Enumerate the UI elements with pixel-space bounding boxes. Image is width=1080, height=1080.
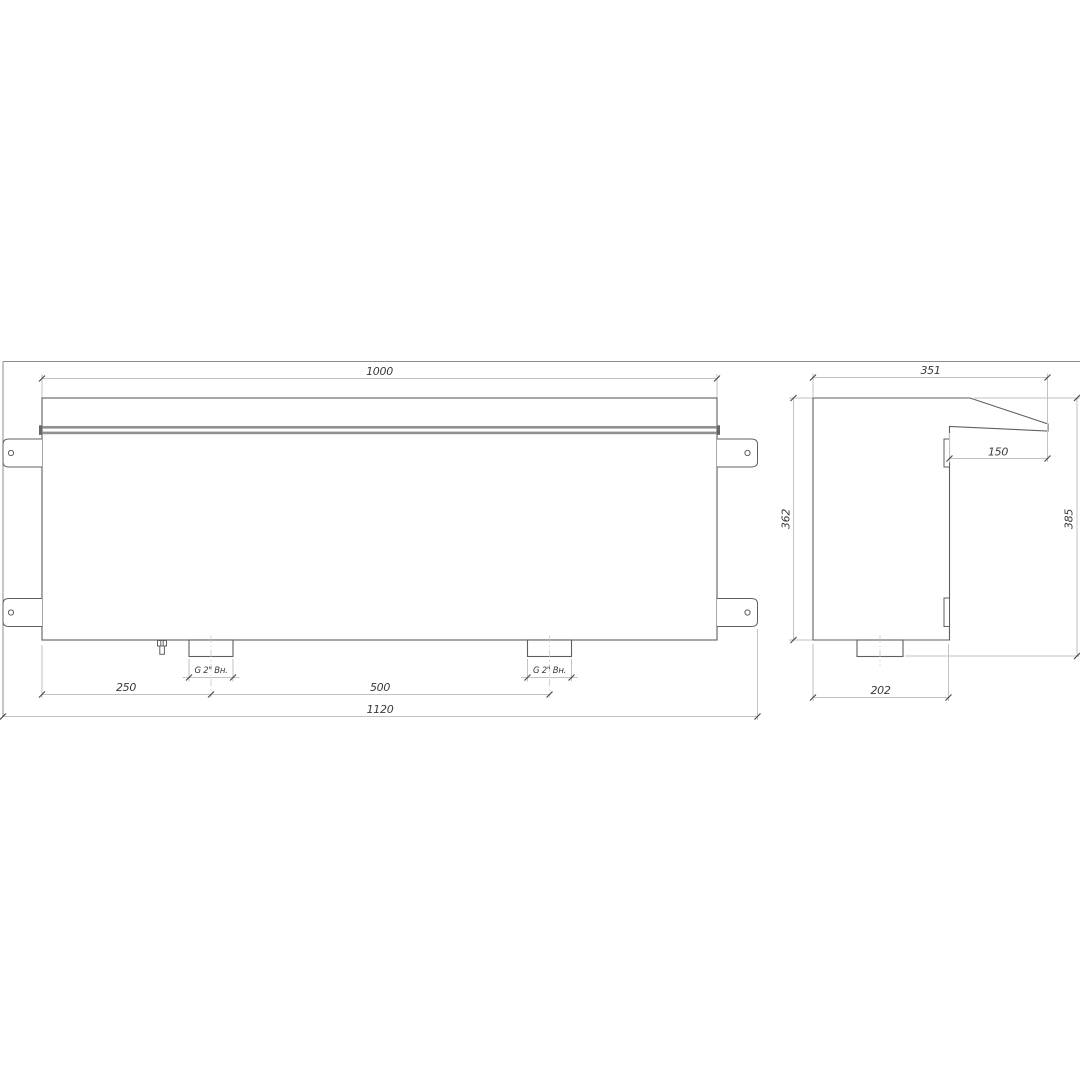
dim-250-label: 250 <box>116 681 136 694</box>
dim-500-label: 500 <box>370 681 390 694</box>
fitting-right-label: G 2" Вн. <box>533 666 566 676</box>
side-view <box>813 398 1048 666</box>
tank-drawing-svg: 1000 250 500 1120 G 2" Вн. G 2" Вн. 351 … <box>0 0 1080 1080</box>
drain-plug <box>158 641 167 655</box>
tank-body-side-profile <box>813 398 1048 640</box>
drain-plug-stem <box>160 646 165 654</box>
rail-bar-upper <box>40 426 720 429</box>
bolt-hole-top-right <box>745 450 750 455</box>
front-view <box>3 398 758 698</box>
technical-drawing-canvas: 1000 250 500 1120 G 2" Вн. G 2" Вн. 351 … <box>0 0 1080 1080</box>
bolt-hole-top-left <box>8 450 13 455</box>
rail-bar-lower <box>40 432 720 435</box>
mounting-bracket-top-right <box>717 439 758 467</box>
dim-385-label: 385 <box>1063 509 1076 529</box>
side-bracket-tab-lower <box>944 598 950 627</box>
bolt-hole-bottom-right <box>745 610 750 615</box>
dim-1000-label: 1000 <box>366 365 393 378</box>
dim-150-label: 150 <box>988 446 1008 459</box>
rail-endcap-left <box>39 425 42 435</box>
dim-362-lines <box>789 398 813 640</box>
drain-plug-flange <box>158 641 167 647</box>
rail-endcap-right <box>717 425 720 435</box>
dim-1120-label: 1120 <box>367 703 394 716</box>
dim-202-label: 202 <box>870 684 890 697</box>
mounting-bracket-bottom-right <box>717 599 758 627</box>
dim-351-label: 351 <box>920 364 940 377</box>
side-bracket-tab-upper <box>944 439 950 467</box>
fitting-left-label: G 2" Вн. <box>195 666 228 676</box>
tank-body-front <box>42 398 717 640</box>
dim-362-label: 362 <box>780 509 793 529</box>
bolt-hole-bottom-left <box>8 610 13 615</box>
